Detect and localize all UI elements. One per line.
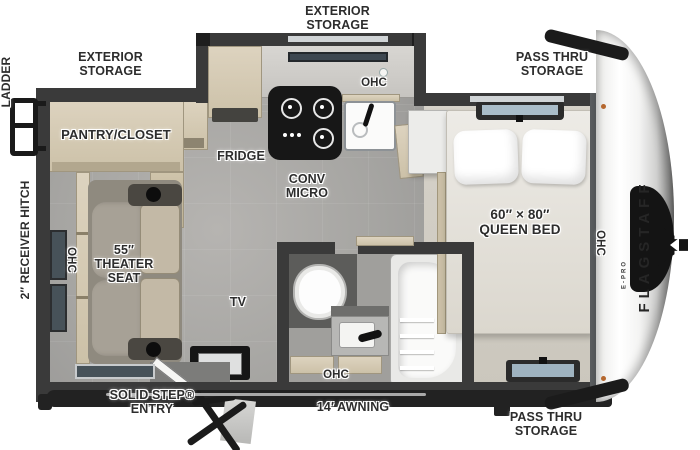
wall-top-left (36, 88, 208, 102)
label-receiver-hitch: 2″ RECEIVER HITCH (19, 170, 33, 310)
brand-name: FLAGSTAFF (636, 179, 653, 312)
shower-door-slat (400, 318, 434, 322)
shelf-above-tub (356, 236, 414, 246)
ladder-rung (10, 123, 38, 128)
brand-logo: FLAGSTAFF (636, 166, 656, 326)
label-ohc-sofa: OHC (63, 238, 77, 282)
label-pass-thru-top: PASS THRU STORAGE (493, 50, 611, 78)
pass-thru-hatch-glass (512, 364, 574, 377)
shower-door-slat (400, 334, 434, 338)
label-ohc-bath: OHC (314, 369, 358, 382)
cooktop-knob-dot (290, 133, 294, 137)
bath-wall-right (462, 242, 474, 388)
cooktop (268, 86, 342, 160)
burner-icon (313, 128, 334, 149)
label-ohc-bed: OHC (592, 221, 606, 265)
marker-light (601, 104, 606, 109)
bath-wall-top-stub (277, 242, 335, 254)
label-awning: 14′ AWNING (298, 400, 408, 414)
floorplan-canvas: FLAGSTAFF E-PRO EXTERIOR STORAGE EXTERIO… (0, 0, 700, 450)
label-queen-bed: 60″ × 80″ QUEEN BED (455, 207, 585, 237)
bed-pillow (453, 129, 519, 185)
shower-door-slat (400, 350, 434, 354)
shower-door-slat (400, 366, 434, 370)
label-fridge: FRIDGE (210, 149, 272, 163)
label-theater-seat: 55″ THEATER SEAT (89, 243, 159, 285)
brand-model-logo: E-PRO (622, 253, 631, 297)
burner-center-dot (288, 105, 292, 109)
cooktop-knob-dot (283, 133, 287, 137)
marker-light (601, 376, 606, 381)
kitchen-light-dot (379, 68, 388, 77)
label-entry: SOLID STEP® ENTRY (102, 388, 202, 416)
label-conv-micro: CONV MICRO (279, 172, 335, 200)
label-tv: TV (222, 295, 254, 309)
label-bed-name: QUEEN BED (455, 222, 585, 237)
wall-corner-bumpout-left (196, 33, 210, 46)
bath-wall-left (277, 242, 289, 388)
label-pass-thru-bottom: PASS THRU STORAGE (487, 410, 605, 438)
cupholder-icon (146, 187, 161, 202)
bottom-wall-window (75, 364, 155, 379)
label-exterior-storage-top: EXTERIOR STORAGE (285, 4, 390, 32)
label-ohc-kitchen: OHC (352, 77, 396, 90)
kitchen-window (288, 52, 388, 62)
rear-bumper-bracket (38, 394, 52, 410)
wall-rear (36, 88, 50, 402)
bath-divider-shelf (331, 306, 389, 316)
burner-icon (281, 98, 302, 119)
rear-window (50, 284, 67, 332)
burner-icon (313, 98, 334, 119)
bedroom-vent-strip (470, 96, 564, 102)
ladder-hook (34, 146, 46, 151)
roof-vent-glass (482, 105, 558, 115)
label-pantry: PANTRY/CLOSET (50, 128, 182, 143)
bed-pillow (521, 129, 587, 185)
brand-model: E-PRO (622, 260, 628, 289)
label-exterior-storage-left: EXTERIOR STORAGE (58, 50, 163, 78)
burner-center-dot (320, 105, 324, 109)
fridge-front (212, 108, 258, 122)
pass-thru-hatch-knob (539, 357, 547, 364)
label-ladder: LADDER (0, 42, 14, 122)
cupholder-icon (146, 342, 161, 357)
bumpout-vent-strip (288, 36, 388, 42)
ladder-hook (34, 101, 46, 106)
pantry-front-edge (52, 162, 180, 171)
cooktop-knob-dot (297, 133, 301, 137)
label-bed-size: 60″ × 80″ (455, 207, 585, 222)
roof-vent-knob (516, 115, 523, 122)
burner-center-dot (320, 135, 324, 139)
